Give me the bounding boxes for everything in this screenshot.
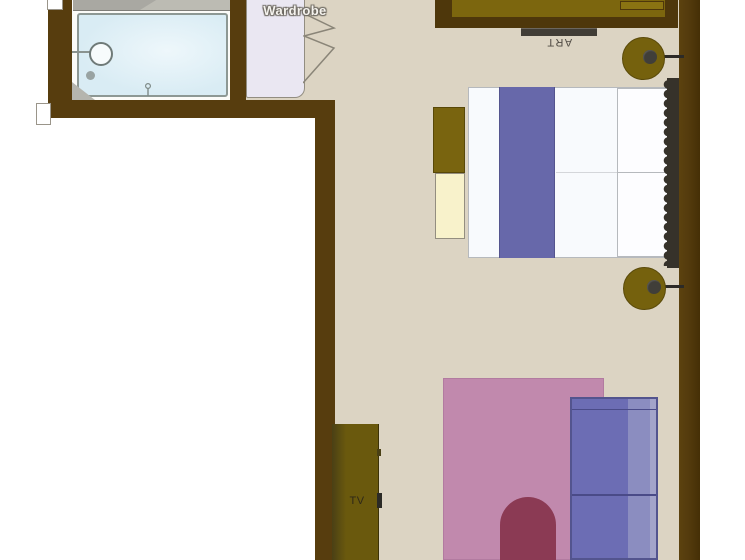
sofa	[570, 397, 658, 560]
sofa-cushion-seam	[572, 494, 656, 496]
bed-bench	[433, 107, 465, 173]
wall-opening-left	[36, 103, 51, 125]
sofa-backrest	[628, 399, 650, 558]
outside-area-bottom-left	[0, 118, 315, 560]
wall-art	[521, 28, 597, 36]
headboard-tufting	[662, 80, 668, 266]
outside-area-right	[700, 0, 745, 560]
sofa-backrest-edge	[650, 399, 656, 558]
wall-right	[679, 0, 700, 560]
tv-cabinet-handle	[377, 449, 381, 456]
bed-runner	[499, 87, 555, 258]
tv-cabinet-shadow	[332, 424, 346, 560]
tv-cabinet	[332, 424, 379, 560]
bed-sheet-fold	[556, 172, 617, 173]
drain-icon	[86, 71, 95, 80]
lamp-bottom-hub-icon	[647, 280, 661, 294]
ottoman	[435, 173, 465, 239]
headboard	[667, 78, 679, 268]
sink-pipe	[72, 51, 90, 53]
floor-plan: Wardrobe ART TV	[0, 0, 745, 560]
round-sink	[89, 42, 113, 66]
art-label: ART	[528, 36, 590, 49]
sofa-seam	[572, 409, 656, 410]
wall-opening-top	[47, 0, 63, 10]
wardrobe-doors-icon	[303, 10, 337, 86]
tv-label: TV	[342, 494, 372, 507]
tv-screen	[377, 493, 382, 508]
wall-horizontal	[48, 100, 335, 118]
faucet-icon	[143, 83, 153, 96]
wardrobe-label: Wardrobe	[250, 2, 340, 18]
arch-chair	[500, 497, 556, 560]
wall-bathroom-divider	[230, 0, 246, 100]
console-tray	[620, 1, 664, 10]
lamp-top-hub-icon	[643, 50, 657, 64]
